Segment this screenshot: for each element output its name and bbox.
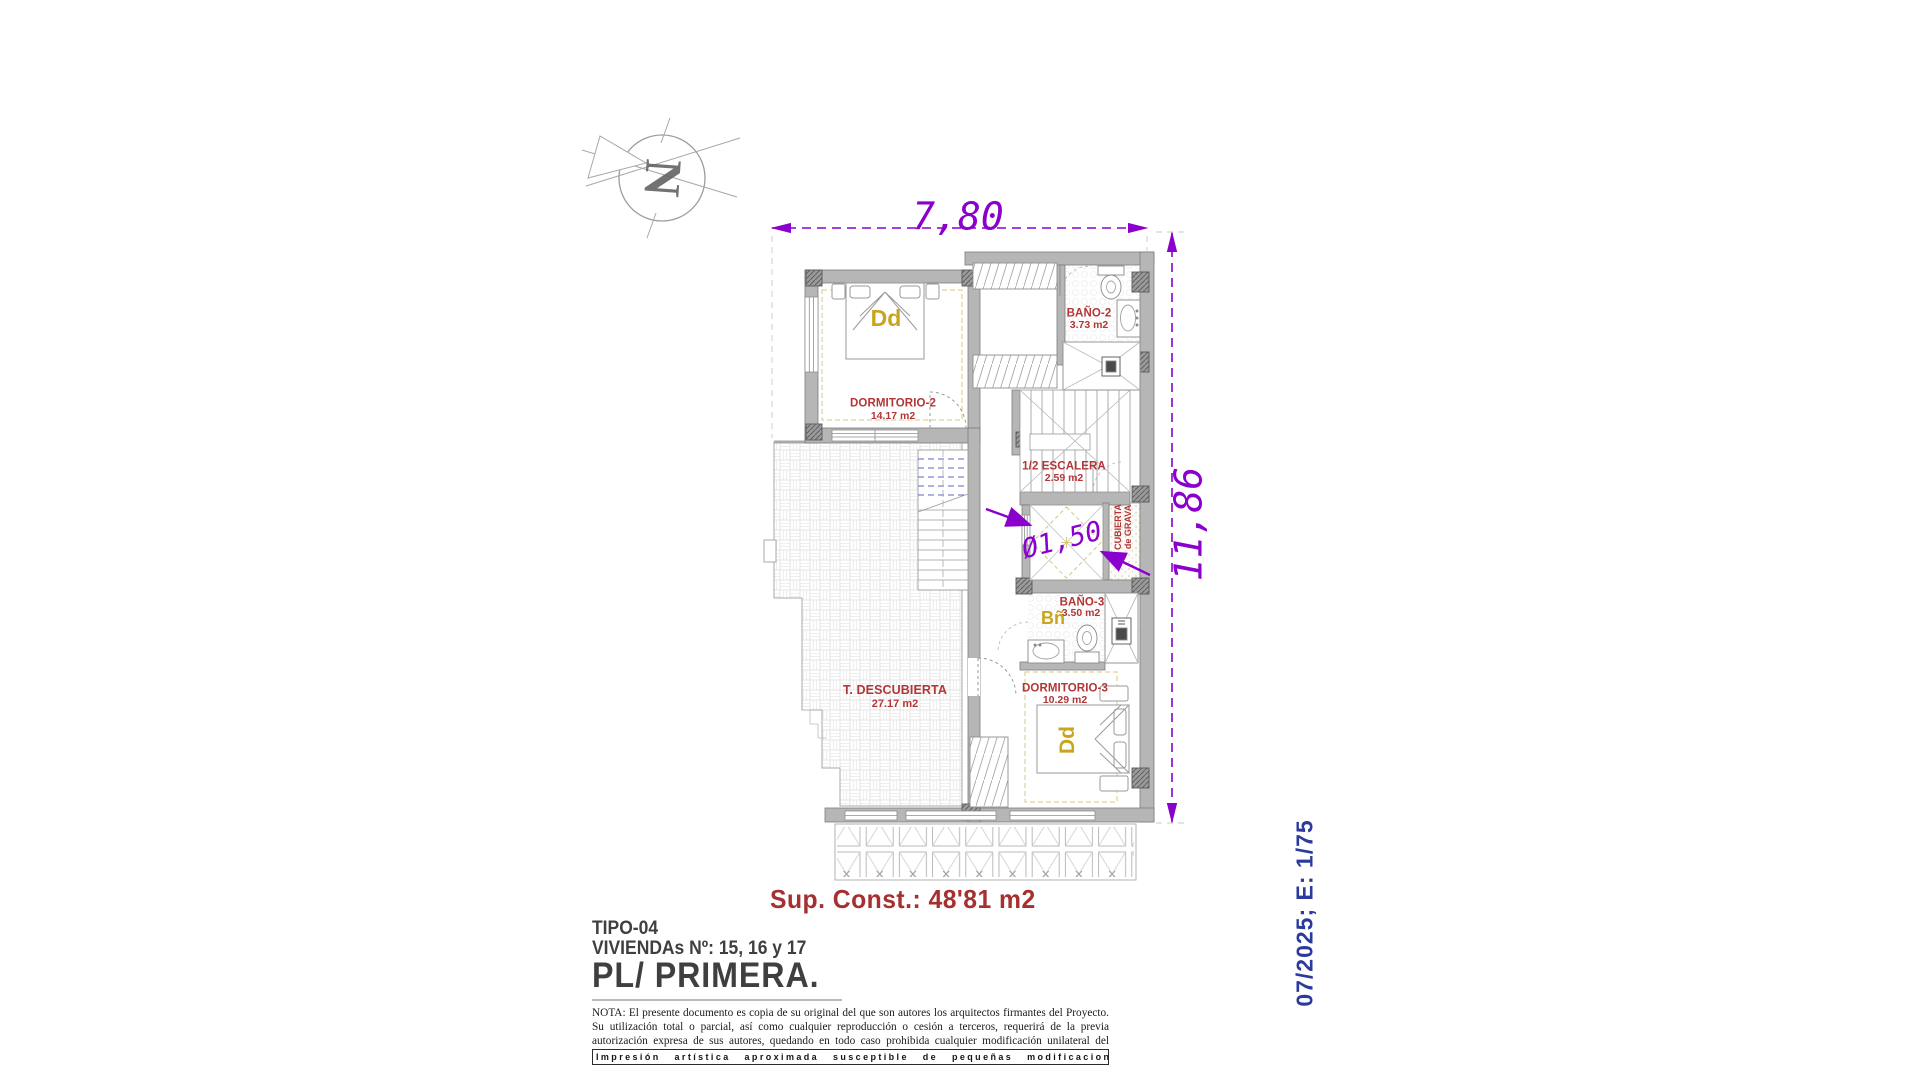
date-scale-stamp: 07/2025; E: 1/75	[1292, 819, 1319, 1006]
drawing-sheet: N	[0, 0, 1920, 1080]
type-label: TIPO-04	[592, 918, 658, 940]
pergola-strip	[835, 824, 1136, 880]
north-arrow-icon: N	[555, 95, 765, 245]
room-tag-dormitorio3: Dd	[1056, 726, 1080, 754]
terrace-stair	[918, 450, 968, 590]
label-cubierta-grava: CUBIERTA de GRAVA	[1114, 504, 1134, 550]
floor-plan-drawing	[755, 205, 1220, 895]
title-divider	[592, 999, 842, 1001]
room-label-terraza: T. DESCUBIERTA	[843, 683, 947, 697]
room-area-terraza: 27.17 m2	[872, 698, 918, 710]
room-area-dormitorio3: 10.29 m2	[1043, 695, 1087, 707]
built-area-label: Sup. Const.: 48'81 m2	[770, 884, 1036, 915]
north-letter: N	[632, 157, 691, 198]
room-tag-bano3: Bñ	[1041, 608, 1065, 628]
room-area-bano2: 3.73 m2	[1070, 320, 1109, 332]
dimension-height-label: 11,86	[1168, 467, 1211, 581]
room-area-dormitorio2: 14.17 m2	[871, 411, 915, 423]
room-area-escalera: 2.59 m2	[1045, 473, 1084, 485]
room-tag-dormitorio2: Dd	[871, 306, 902, 332]
cubierta-line2: de GRAVA	[1124, 504, 1134, 550]
floor-title: PL/ PRIMERA.	[592, 956, 820, 996]
dimension-width-label: 7,80	[912, 196, 1004, 239]
room-area-bano3: 3.50 m2	[1062, 608, 1101, 620]
room-label-dormitorio2: DORMITORIO-2	[850, 398, 936, 411]
disclaimer-box: Impresión artística aproximada susceptib…	[592, 1049, 1109, 1065]
